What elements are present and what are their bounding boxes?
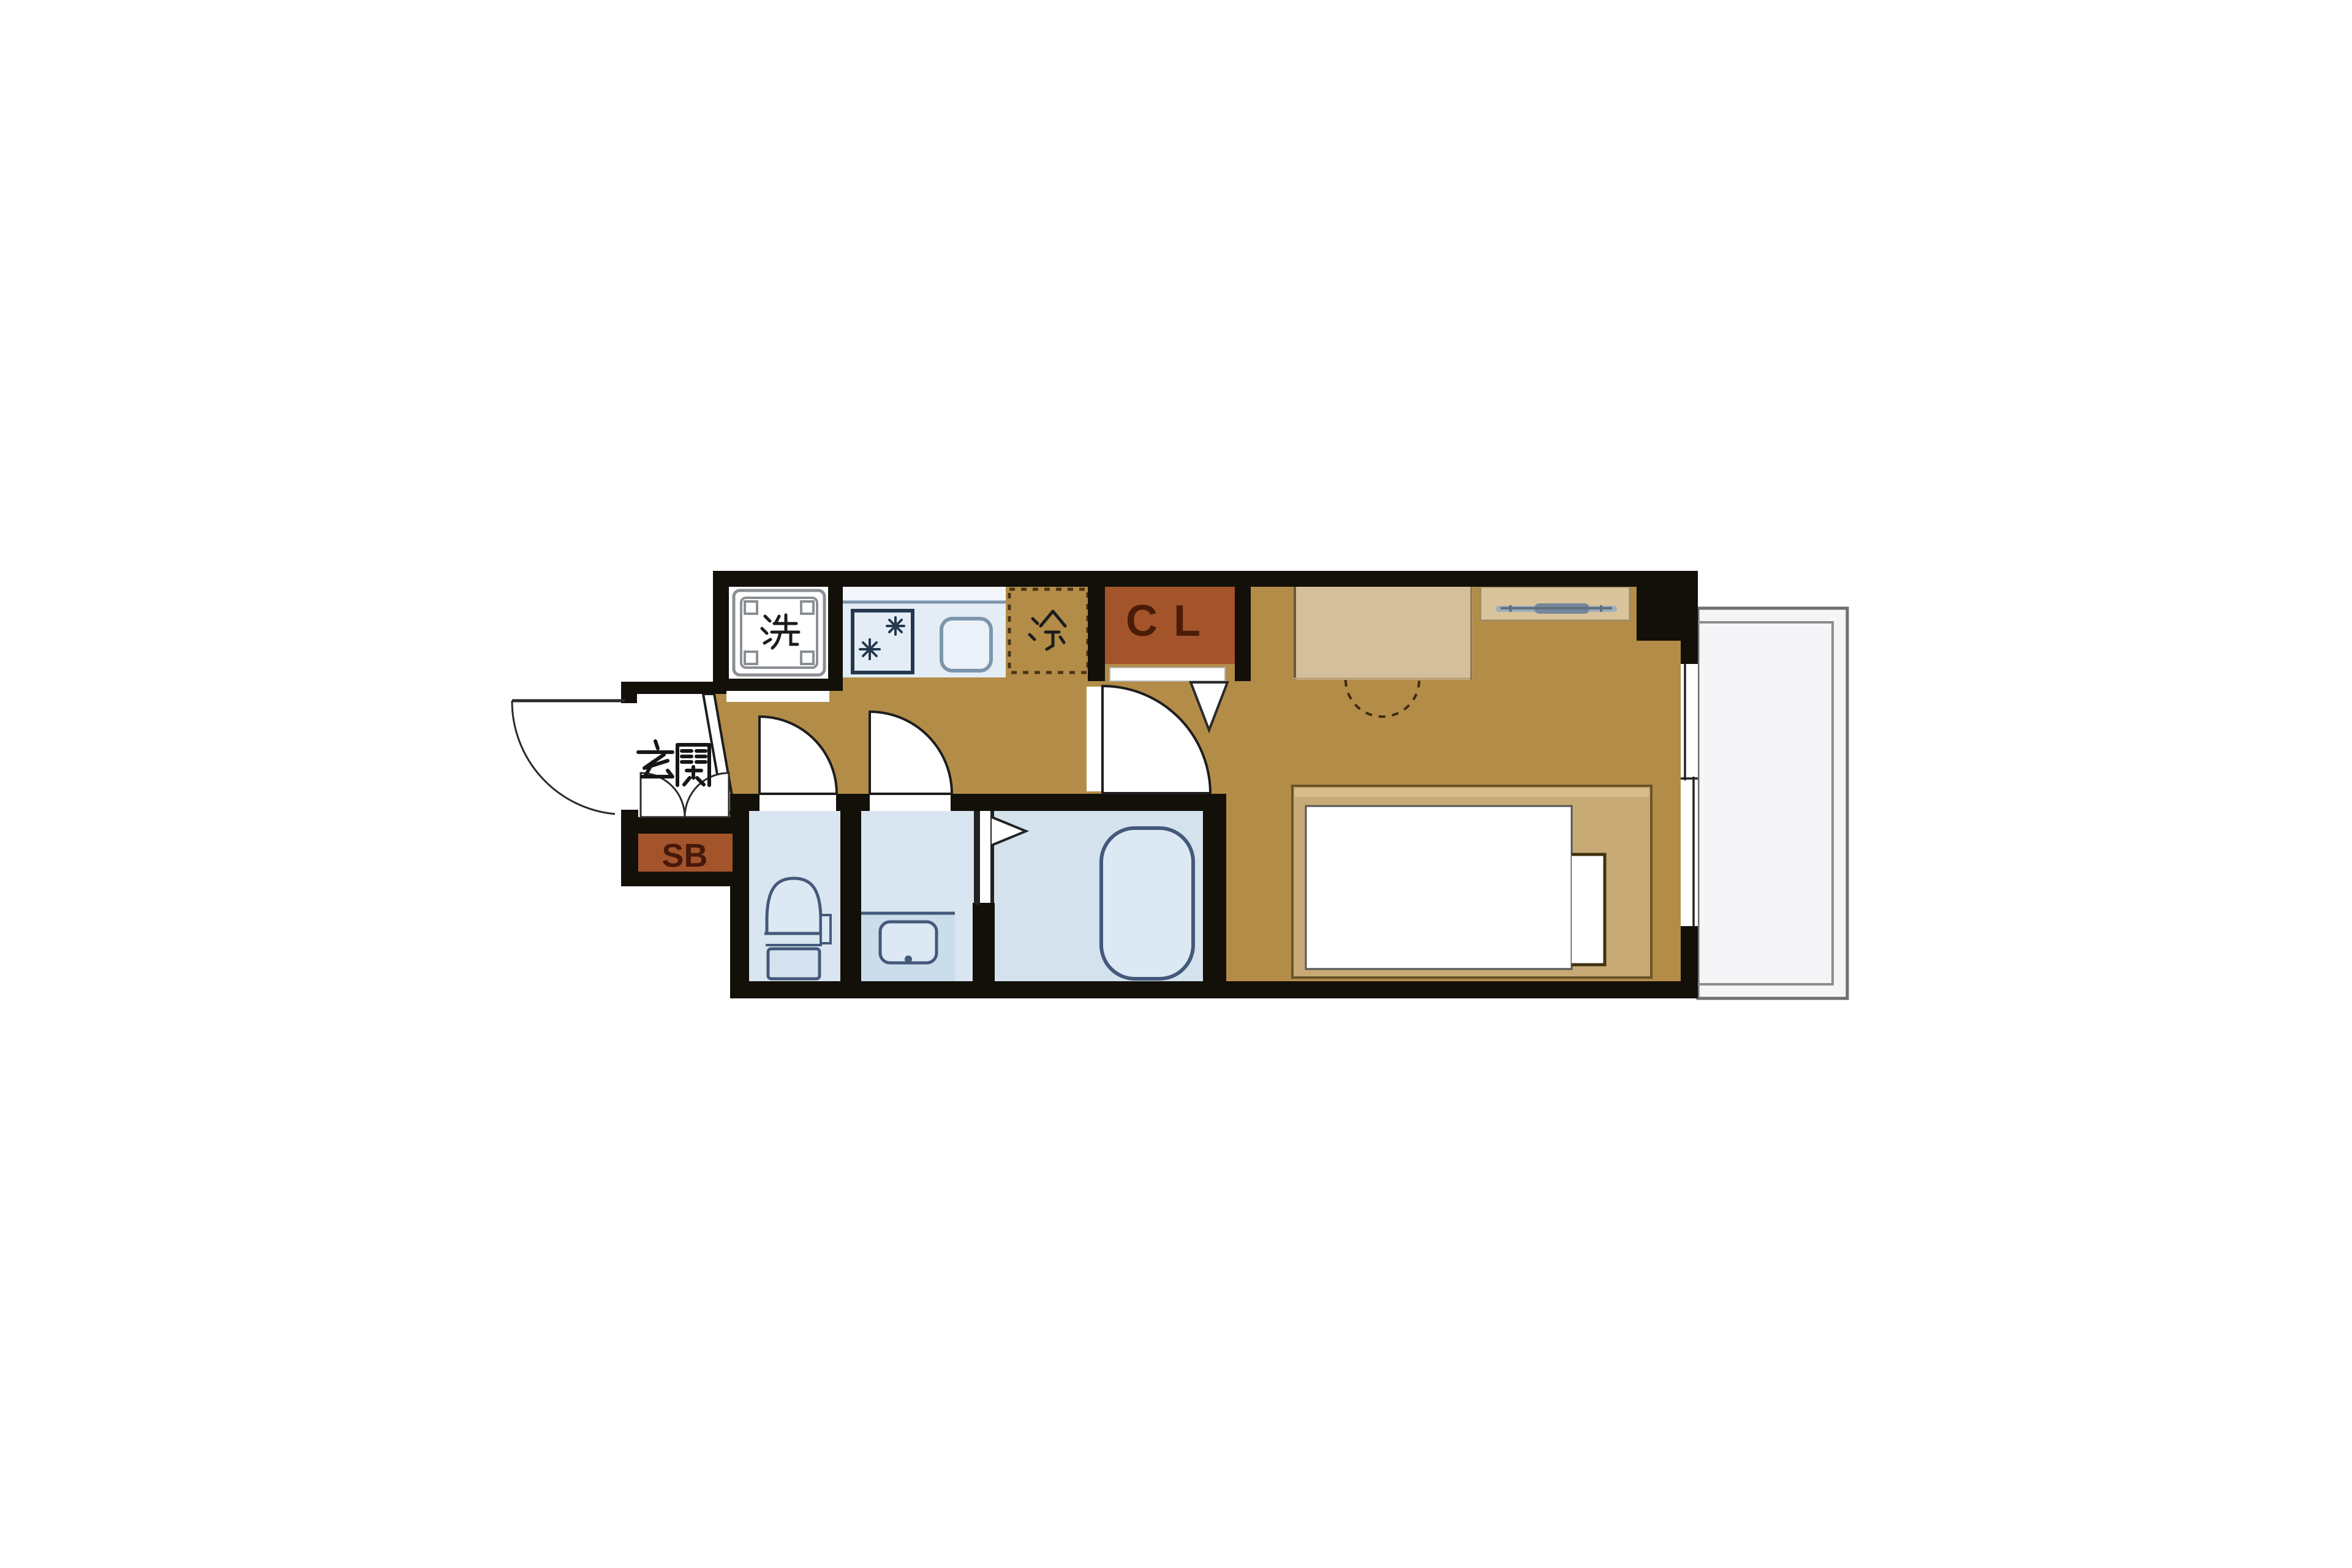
svg-text:CL: CL bbox=[1126, 597, 1216, 646]
svg-text:SB: SB bbox=[661, 837, 707, 874]
